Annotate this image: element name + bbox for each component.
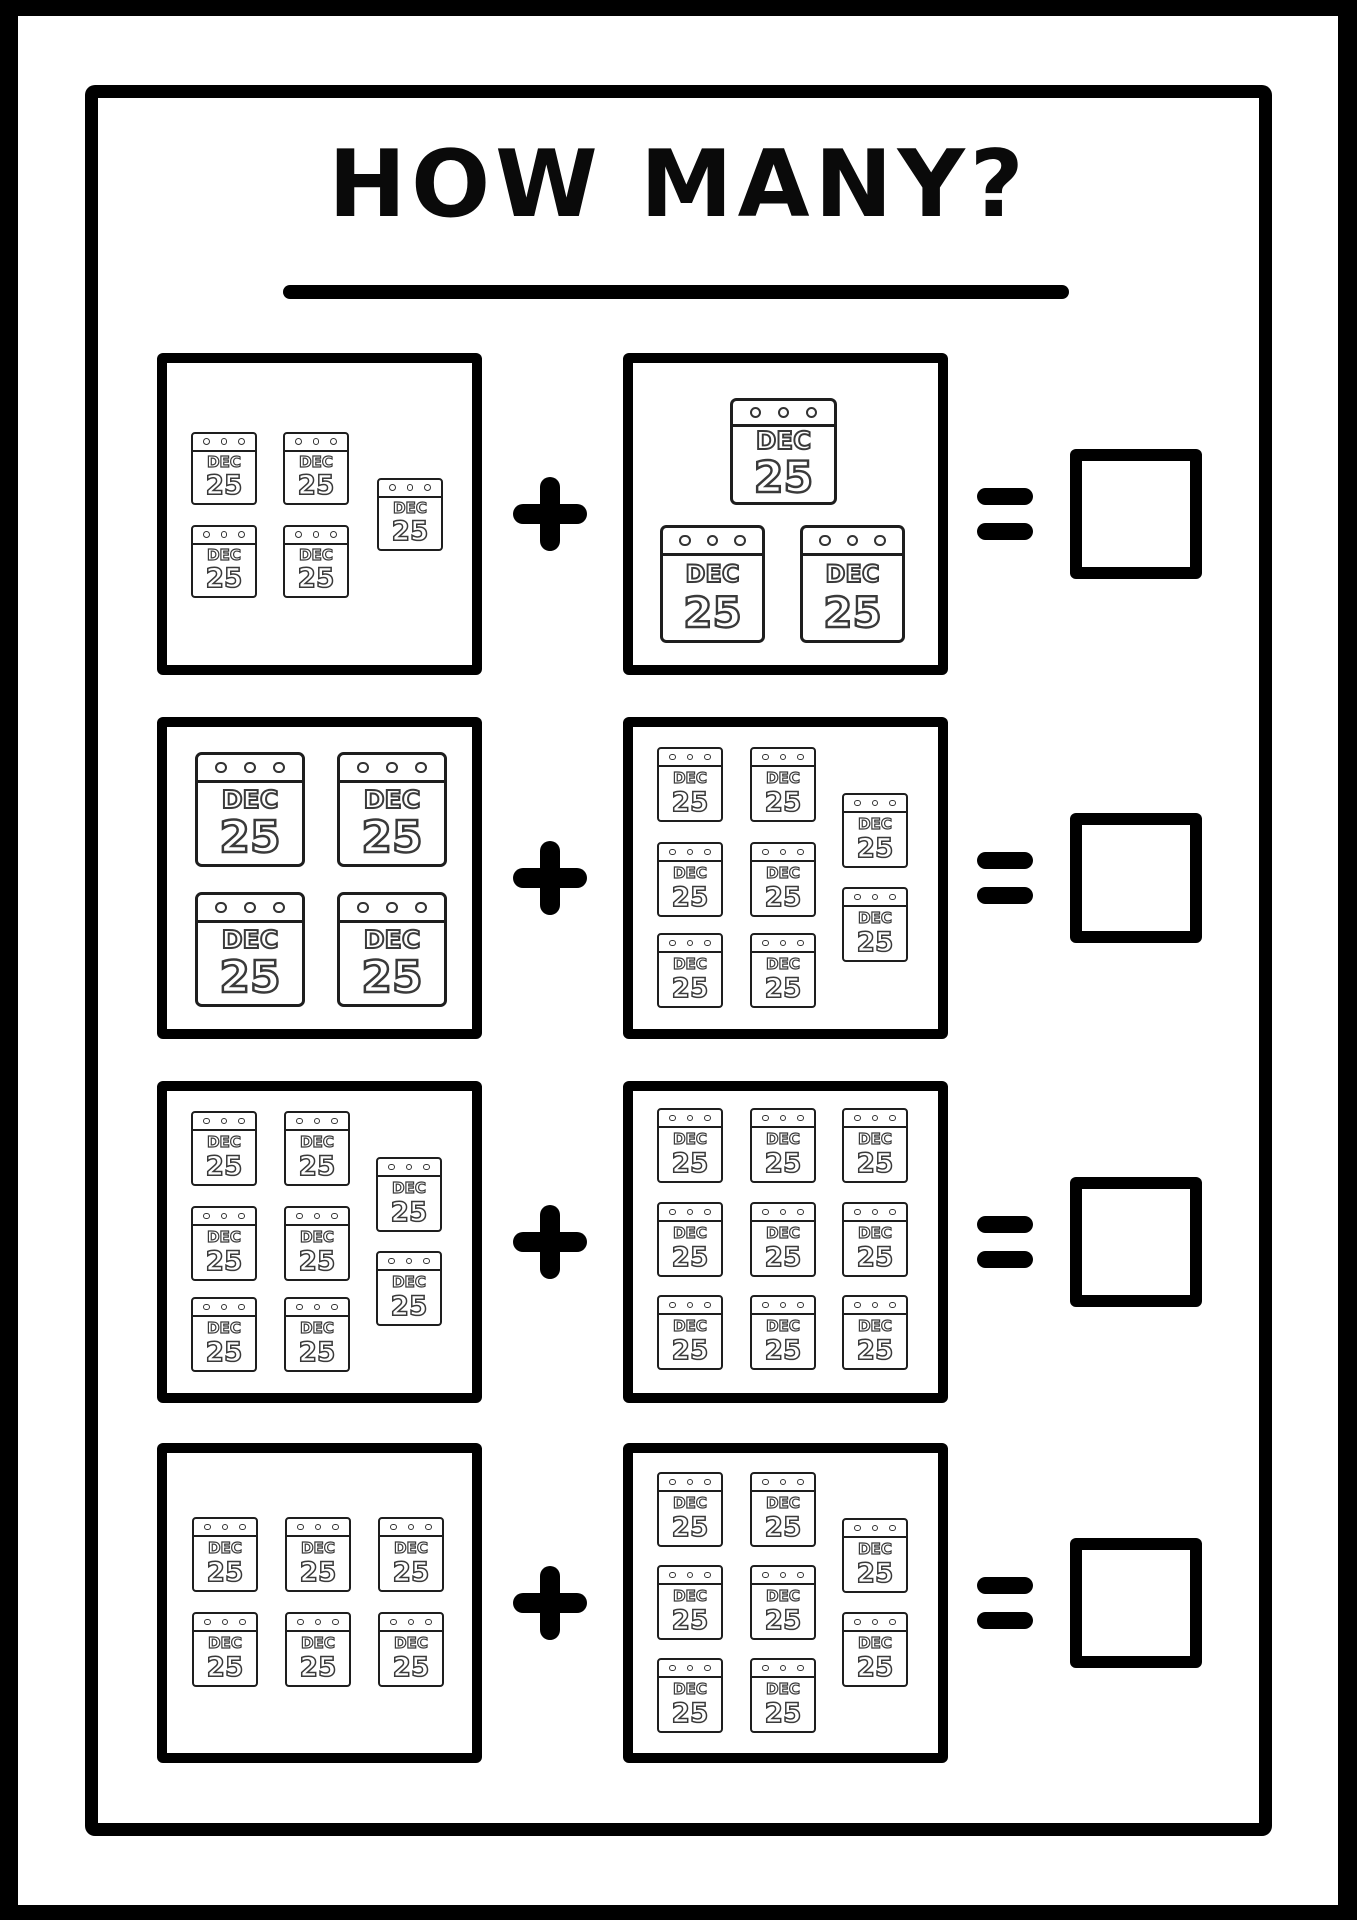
calendar-dec-25-icon: DEC25 (842, 1295, 908, 1370)
calendar-day-label: 25 (823, 592, 881, 634)
binding-hole-dot (780, 1209, 787, 1216)
binding-hole-dot (221, 1213, 228, 1220)
calendar-day-label: 25 (857, 1245, 894, 1271)
calendar-dec-25-icon: DEC25 (285, 1612, 351, 1687)
calendar-date: DEC25 (844, 1222, 906, 1275)
calendar-dec-25-icon: DEC25 (750, 1472, 816, 1547)
calendar-day-label: 25 (361, 816, 422, 860)
binding-hole-dot (854, 1302, 861, 1309)
calendar-month-label: DEC (858, 1319, 892, 1334)
binding-hole-dot (415, 762, 427, 774)
binding-hole-dot (762, 1572, 769, 1579)
binding-hole-dot (669, 1479, 676, 1486)
binding-hole-dot (778, 407, 789, 418)
calendar-day-label: 25 (393, 1655, 430, 1681)
binding-hole-dot (874, 535, 885, 546)
calendar-binding-header (752, 749, 814, 767)
binding-hole-dot (762, 940, 769, 947)
calendar-month-label: DEC (393, 501, 427, 516)
binding-hole-dot (872, 800, 879, 807)
calendar-day-label: 25 (207, 1560, 244, 1586)
calendar-month-label: DEC (858, 1226, 892, 1241)
calendar-day-label: 25 (219, 956, 280, 1000)
calendar-day-label: 25 (206, 1154, 243, 1180)
equals-bar-bottom (977, 887, 1033, 904)
calendar-binding-header (340, 755, 444, 783)
binding-hole-dot (357, 902, 369, 914)
binding-hole-dot (295, 438, 302, 445)
calendar-date: DEC25 (844, 1538, 906, 1591)
binding-hole-dot (244, 762, 256, 774)
calendar-binding-header (659, 1204, 721, 1222)
calendar-binding-header (193, 1208, 255, 1226)
equals-bar-top (977, 488, 1033, 505)
calendar-month-label: DEC (301, 1541, 335, 1556)
calendar-dec-25-icon: DEC25 (657, 1108, 723, 1183)
binding-hole-dot (872, 1209, 879, 1216)
binding-hole-dot (687, 1209, 694, 1216)
calendar-month-label: DEC (299, 455, 333, 470)
calendar-month-label: DEC (207, 1230, 241, 1245)
binding-hole-dot (238, 1118, 245, 1125)
binding-hole-dot (221, 531, 228, 538)
calendar-day-label: 25 (765, 1245, 802, 1271)
calendar-binding-header (286, 1208, 348, 1226)
calendar-date: DEC25 (659, 767, 721, 820)
calendar-dec-25-icon: DEC25 (657, 1658, 723, 1733)
binding-hole-dot (425, 1619, 432, 1626)
binding-hole-dot (669, 940, 676, 947)
calendar-dec-25-icon: DEC25 (191, 1297, 257, 1372)
binding-hole-dot (221, 1118, 228, 1125)
addend-box-right-row-1: DEC25DEC25DEC25 (623, 353, 948, 675)
binding-hole-dot (797, 1209, 804, 1216)
binding-hole-dot (390, 1524, 397, 1531)
calendar-binding-header (287, 1614, 349, 1632)
calendar-binding-header (752, 1567, 814, 1585)
answer-box-row-2[interactable] (1070, 813, 1202, 943)
calendar-day-label: 25 (765, 790, 802, 816)
calendar-day-label: 25 (765, 1151, 802, 1177)
binding-hole-dot (889, 800, 896, 807)
calendar-date: DEC25 (733, 427, 834, 502)
calendar-binding-header (844, 1204, 906, 1222)
binding-hole-dot (704, 940, 711, 947)
calendar-date: DEC25 (287, 1537, 349, 1590)
binding-hole-dot (679, 535, 690, 546)
binding-hole-dot (797, 1572, 804, 1579)
plus-bar-vertical (540, 477, 560, 551)
calendar-dec-25-icon: DEC25 (337, 752, 447, 867)
calendar-dec-25-icon: DEC25 (195, 892, 305, 1007)
binding-hole-dot (872, 894, 879, 901)
calendar-month-label: DEC (766, 1496, 800, 1511)
calendar-binding-header (752, 1110, 814, 1128)
calendar-binding-header (379, 480, 441, 498)
binding-hole-dot (872, 1302, 879, 1309)
calendar-date: DEC25 (286, 1317, 348, 1370)
addend-box-right-row-4: DEC25DEC25DEC25DEC25DEC25DEC25DEC25DEC25 (623, 1443, 948, 1763)
calendar-day-label: 25 (300, 1655, 337, 1681)
calendar-binding-header (285, 527, 347, 545)
calendar-day-label: 25 (299, 1154, 336, 1180)
calendar-month-label: DEC (207, 1321, 241, 1336)
calendar-month-label: DEC (766, 1589, 800, 1604)
calendar-dec-25-icon: DEC25 (730, 398, 837, 505)
binding-hole-dot (273, 762, 285, 774)
calendar-dec-25-icon: DEC25 (191, 1111, 257, 1186)
binding-hole-dot (704, 1665, 711, 1672)
calendar-day-label: 25 (672, 1245, 709, 1271)
binding-hole-dot (315, 1619, 322, 1626)
binding-hole-dot (780, 1302, 787, 1309)
calendar-month-label: DEC (673, 1496, 707, 1511)
binding-hole-dot (762, 1115, 769, 1122)
calendar-month-label: DEC (392, 1275, 426, 1290)
binding-hole-dot (704, 754, 711, 761)
calendar-binding-header (286, 1299, 348, 1317)
calendar-binding-header (844, 1614, 906, 1632)
binding-hole-dot (687, 754, 694, 761)
binding-hole-dot (889, 1209, 896, 1216)
calendar-month-label: DEC (222, 787, 279, 812)
calendar-dec-25-icon: DEC25 (283, 432, 349, 505)
binding-hole-dot (762, 1479, 769, 1486)
calendar-date: DEC25 (844, 1632, 906, 1685)
calendar-date: DEC25 (752, 767, 814, 820)
binding-hole-dot (314, 1118, 321, 1125)
calendar-date: DEC25 (285, 545, 347, 596)
calendar-dec-25-icon: DEC25 (750, 747, 816, 822)
binding-hole-dot (854, 1115, 861, 1122)
calendar-binding-header (287, 1519, 349, 1537)
binding-hole-dot (687, 1665, 694, 1672)
calendar-date: DEC25 (659, 1678, 721, 1731)
calendar-date: DEC25 (380, 1537, 442, 1590)
calendar-day-label: 25 (857, 930, 894, 956)
binding-hole-dot (806, 407, 817, 418)
calendar-binding-header (193, 527, 255, 545)
binding-hole-dot (854, 1209, 861, 1216)
calendar-dec-25-icon: DEC25 (657, 933, 723, 1008)
binding-hole-dot (687, 1302, 694, 1309)
calendar-dec-25-icon: DEC25 (192, 1517, 258, 1592)
binding-hole-dot (872, 1619, 879, 1626)
binding-hole-dot (222, 1524, 229, 1531)
calendar-dec-25-icon: DEC25 (195, 752, 305, 867)
calendar-day-label: 25 (299, 1340, 336, 1366)
calendar-month-label: DEC (766, 771, 800, 786)
calendar-binding-header (844, 795, 906, 813)
calendar-dec-25-icon: DEC25 (750, 842, 816, 917)
calendar-binding-header (193, 434, 255, 452)
binding-hole-dot (386, 762, 398, 774)
binding-hole-dot (797, 1115, 804, 1122)
equals-icon-row-2 (977, 852, 1033, 904)
calendar-dec-25-icon: DEC25 (378, 1612, 444, 1687)
binding-hole-dot (313, 438, 320, 445)
calendar-binding-header (752, 1297, 814, 1315)
calendar-day-label: 25 (672, 1338, 709, 1364)
plus-icon-row-1 (513, 477, 587, 551)
calendar-date: DEC25 (844, 1315, 906, 1368)
calendar-dec-25-icon: DEC25 (657, 1295, 723, 1370)
calendar-binding-header (198, 755, 302, 783)
calendar-date: DEC25 (659, 1128, 721, 1181)
calendar-dec-25-icon: DEC25 (376, 1251, 442, 1326)
calendar-dec-25-icon: DEC25 (660, 525, 765, 643)
calendar-date: DEC25 (287, 1632, 349, 1685)
calendar-month-label: DEC (766, 1682, 800, 1697)
calendar-dec-25-icon: DEC25 (842, 1518, 908, 1593)
calendar-binding-header (659, 844, 721, 862)
equals-bar-bottom (977, 1251, 1033, 1268)
calendar-binding-header (659, 1297, 721, 1315)
calendar-month-label: DEC (208, 1541, 242, 1556)
calendar-month-label: DEC (756, 429, 811, 454)
calendar-date: DEC25 (659, 1492, 721, 1545)
binding-hole-dot (239, 1619, 246, 1626)
binding-hole-dot (704, 849, 711, 856)
calendar-date: DEC25 (659, 1222, 721, 1275)
calendar-day-label: 25 (672, 1151, 709, 1177)
calendar-month-label: DEC (673, 1682, 707, 1697)
calendar-dec-25-icon: DEC25 (284, 1206, 350, 1281)
calendar-dec-25-icon: DEC25 (285, 1517, 351, 1592)
binding-hole-dot (669, 1572, 676, 1579)
binding-hole-dot (296, 1304, 303, 1311)
calendar-dec-25-icon: DEC25 (191, 432, 257, 505)
calendar-day-label: 25 (206, 1340, 243, 1366)
calendar-date: DEC25 (194, 1632, 256, 1685)
calendar-dec-25-icon: DEC25 (284, 1297, 350, 1372)
binding-hole-dot (687, 1572, 694, 1579)
calendar-day-label: 25 (672, 976, 709, 1002)
calendar-dec-25-icon: DEC25 (750, 1202, 816, 1277)
calendar-month-label: DEC (394, 1541, 428, 1556)
binding-hole-dot (687, 849, 694, 856)
worksheet-page: HOW MANY? DEC25DEC25DEC25DEC25DEC25DEC25… (0, 0, 1357, 1920)
calendar-binding-header (659, 749, 721, 767)
binding-hole-dot (408, 1619, 415, 1626)
calendar-dec-25-icon: DEC25 (378, 1517, 444, 1592)
binding-hole-dot (389, 484, 396, 491)
plus-bar-vertical (540, 841, 560, 915)
calendar-binding-header (193, 1113, 255, 1131)
calendar-month-label: DEC (364, 787, 421, 812)
calendar-date: DEC25 (193, 452, 255, 503)
calendar-dec-25-icon: DEC25 (283, 525, 349, 598)
calendar-day-label: 25 (672, 1608, 709, 1634)
calendar-dec-25-icon: DEC25 (750, 1295, 816, 1370)
calendar-month-label: DEC (299, 548, 333, 563)
calendar-date: DEC25 (752, 953, 814, 1006)
calendar-dec-25-icon: DEC25 (376, 1157, 442, 1232)
calendar-month-label: DEC (766, 1319, 800, 1334)
calendar-binding-header (285, 434, 347, 452)
binding-hole-dot (854, 894, 861, 901)
addend-box-left-row-3: DEC25DEC25DEC25DEC25DEC25DEC25DEC25DEC25 (157, 1081, 482, 1403)
binding-hole-dot (762, 1665, 769, 1672)
calendar-binding-header (193, 1299, 255, 1317)
calendar-date: DEC25 (803, 556, 902, 640)
calendar-binding-header (752, 1660, 814, 1678)
calendar-date: DEC25 (659, 1585, 721, 1638)
calendar-binding-header (380, 1519, 442, 1537)
plus-icon-row-2 (513, 841, 587, 915)
calendar-dec-25-icon: DEC25 (657, 1202, 723, 1277)
binding-hole-dot (314, 1304, 321, 1311)
calendar-day-label: 25 (391, 1294, 428, 1320)
calendar-binding-header (380, 1614, 442, 1632)
calendar-month-label: DEC (207, 455, 241, 470)
plus-icon-row-3 (513, 1205, 587, 1279)
binding-hole-dot (222, 1619, 229, 1626)
calendar-month-label: DEC (766, 1226, 800, 1241)
binding-hole-dot (750, 407, 761, 418)
calendar-day-label: 25 (672, 1701, 709, 1727)
binding-hole-dot (204, 1524, 211, 1531)
binding-hole-dot (854, 800, 861, 807)
calendar-day-label: 25 (299, 1249, 336, 1275)
binding-hole-dot (295, 531, 302, 538)
answer-box-row-1[interactable] (1070, 449, 1202, 579)
calendar-dec-25-icon: DEC25 (191, 1206, 257, 1281)
equals-icon-row-4 (977, 1577, 1033, 1629)
calendar-date: DEC25 (659, 953, 721, 1006)
binding-hole-dot (406, 1258, 413, 1265)
answer-box-row-4[interactable] (1070, 1538, 1202, 1668)
calendar-month-label: DEC (858, 1542, 892, 1557)
calendar-binding-header (663, 528, 762, 556)
binding-hole-dot (669, 1209, 676, 1216)
binding-hole-dot (819, 535, 830, 546)
plus-icon-row-4 (513, 1566, 587, 1640)
binding-hole-dot (425, 1524, 432, 1531)
calendar-dec-25-icon: DEC25 (750, 933, 816, 1008)
calendar-binding-header (752, 844, 814, 862)
calendar-dec-25-icon: DEC25 (842, 793, 908, 868)
calendar-dec-25-icon: DEC25 (750, 1108, 816, 1183)
binding-hole-dot (704, 1302, 711, 1309)
calendar-month-label: DEC (394, 1636, 428, 1651)
calendar-date: DEC25 (193, 545, 255, 596)
calendar-day-label: 25 (298, 566, 335, 592)
calendar-dec-25-icon: DEC25 (657, 842, 723, 917)
calendar-dec-25-icon: DEC25 (337, 892, 447, 1007)
calendar-day-label: 25 (206, 1249, 243, 1275)
calendar-date: DEC25 (193, 1131, 255, 1184)
calendar-month-label: DEC (673, 1226, 707, 1241)
calendar-binding-header (844, 1297, 906, 1315)
binding-hole-dot (669, 1115, 676, 1122)
binding-hole-dot (331, 1304, 338, 1311)
binding-hole-dot (296, 1213, 303, 1220)
binding-hole-dot (780, 1479, 787, 1486)
binding-hole-dot (424, 484, 431, 491)
calendar-date: DEC25 (340, 923, 444, 1004)
binding-hole-dot (669, 1302, 676, 1309)
binding-hole-dot (780, 940, 787, 947)
calendar-day-label: 25 (392, 519, 429, 545)
calendar-month-label: DEC (207, 1135, 241, 1150)
calendar-binding-header (659, 1567, 721, 1585)
calendar-dec-25-icon: DEC25 (750, 1658, 816, 1733)
calendar-date: DEC25 (193, 1317, 255, 1370)
calendar-day-label: 25 (219, 816, 280, 860)
binding-hole-dot (244, 902, 256, 914)
binding-hole-dot (872, 1525, 879, 1532)
binding-hole-dot (669, 754, 676, 761)
binding-hole-dot (203, 531, 210, 538)
binding-hole-dot (390, 1619, 397, 1626)
calendar-date: DEC25 (752, 1678, 814, 1731)
binding-hole-dot (314, 1213, 321, 1220)
calendar-day-label: 25 (857, 1338, 894, 1364)
calendar-binding-header (378, 1253, 440, 1271)
binding-hole-dot (704, 1209, 711, 1216)
calendar-day-label: 25 (672, 1515, 709, 1541)
binding-hole-dot (687, 1115, 694, 1122)
binding-hole-dot (315, 1524, 322, 1531)
binding-hole-dot (332, 1619, 339, 1626)
binding-hole-dot (889, 1115, 896, 1122)
binding-hole-dot (780, 754, 787, 761)
calendar-month-label: DEC (300, 1321, 334, 1336)
calendar-binding-header (194, 1614, 256, 1632)
binding-hole-dot (797, 1479, 804, 1486)
binding-hole-dot (734, 535, 745, 546)
binding-hole-dot (313, 531, 320, 538)
calendar-dec-25-icon: DEC25 (842, 887, 908, 962)
addend-box-left-row-2: DEC25DEC25DEC25DEC25 (157, 717, 482, 1039)
calendar-date: DEC25 (379, 498, 441, 549)
calendar-date: DEC25 (286, 1131, 348, 1184)
answer-box-row-3[interactable] (1070, 1177, 1202, 1307)
calendar-month-label: DEC (673, 957, 707, 972)
equals-bar-bottom (977, 1612, 1033, 1629)
binding-hole-dot (687, 940, 694, 947)
calendar-date: DEC25 (198, 783, 302, 864)
binding-hole-dot (423, 1164, 430, 1171)
binding-hole-dot (797, 1665, 804, 1672)
calendar-binding-header (844, 889, 906, 907)
calendar-day-label: 25 (857, 836, 894, 862)
calendar-dec-25-icon: DEC25 (842, 1108, 908, 1183)
calendar-binding-header (659, 935, 721, 953)
calendar-date: DEC25 (752, 1222, 814, 1275)
binding-hole-dot (221, 438, 228, 445)
binding-hole-dot (854, 1619, 861, 1626)
binding-hole-dot (797, 754, 804, 761)
calendar-month-label: DEC (301, 1636, 335, 1651)
calendar-date: DEC25 (844, 907, 906, 960)
calendar-date: DEC25 (844, 813, 906, 866)
calendar-day-label: 25 (672, 885, 709, 911)
calendar-binding-header (659, 1474, 721, 1492)
calendar-month-label: DEC (673, 1319, 707, 1334)
calendar-binding-header (752, 1204, 814, 1222)
calendar-dec-25-icon: DEC25 (750, 1565, 816, 1640)
calendar-month-label: DEC (858, 1636, 892, 1651)
binding-hole-dot (386, 902, 398, 914)
calendar-month-label: DEC (673, 866, 707, 881)
calendar-day-label: 25 (207, 1655, 244, 1681)
binding-hole-dot (296, 1118, 303, 1125)
calendar-dec-25-icon: DEC25 (842, 1612, 908, 1687)
calendar-date: DEC25 (193, 1226, 255, 1279)
addend-box-left-row-1: DEC25DEC25DEC25DEC25DEC25 (157, 353, 482, 675)
